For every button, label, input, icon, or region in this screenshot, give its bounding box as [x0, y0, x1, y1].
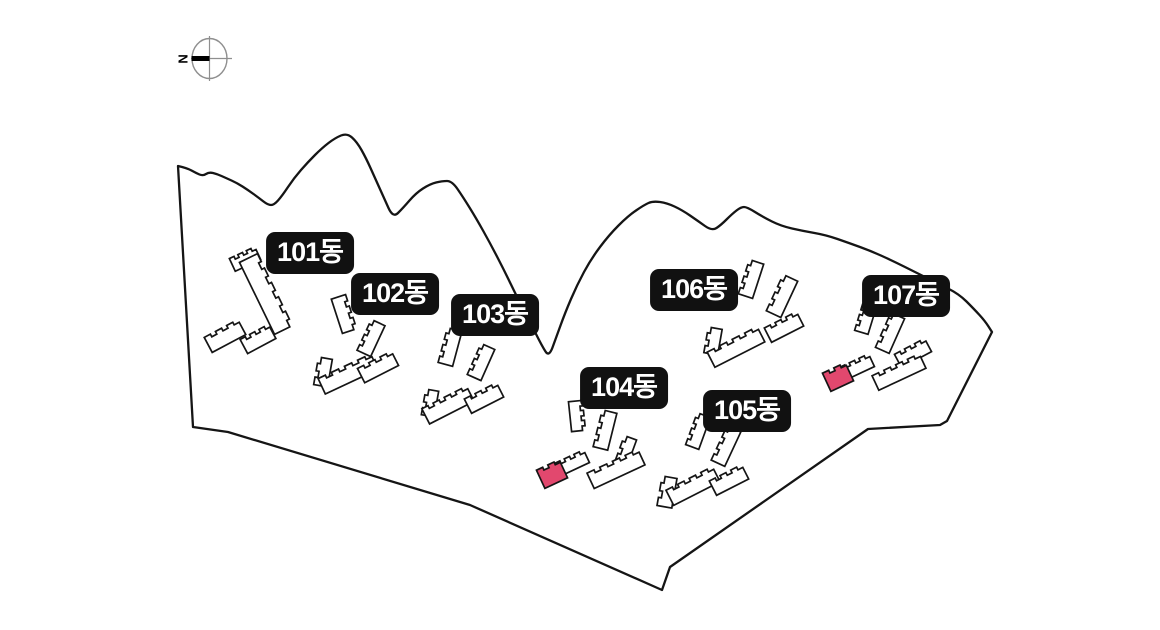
building-footprint-103[interactable]: [467, 343, 495, 380]
building-footprint-104[interactable]: [593, 410, 617, 451]
building-footprint-106[interactable]: [738, 260, 763, 299]
building-label-102[interactable]: 102동: [351, 273, 439, 315]
building-footprint-104[interactable]: [587, 449, 645, 488]
site-map-svg: N: [0, 0, 1160, 630]
compass: N: [176, 36, 233, 81]
building-footprint-101[interactable]: [240, 324, 276, 353]
building-footprint-101[interactable]: [204, 320, 246, 353]
building-footprint-105[interactable]: [709, 465, 748, 496]
building-footprint-106[interactable]: [764, 312, 803, 343]
building-label-106[interactable]: 106동: [650, 269, 738, 311]
building-label-101[interactable]: 101동: [266, 232, 354, 274]
building-label-105[interactable]: 105동: [703, 390, 791, 432]
building-footprint-102[interactable]: [357, 319, 385, 356]
building-label-103[interactable]: 103동: [451, 294, 539, 336]
site-plan-stage: N 101동102동103동104동105동106동107동: [0, 0, 1160, 630]
building-footprint-102[interactable]: [357, 351, 398, 383]
building-label-104[interactable]: 104동: [580, 367, 668, 409]
building-footprint-103[interactable]: [464, 383, 503, 414]
building-footprint-107[interactable]: [875, 313, 904, 354]
building-footprint-106[interactable]: [766, 274, 797, 317]
building-label-107[interactable]: 107동: [862, 275, 950, 317]
compass-north-letter: N: [176, 54, 191, 63]
